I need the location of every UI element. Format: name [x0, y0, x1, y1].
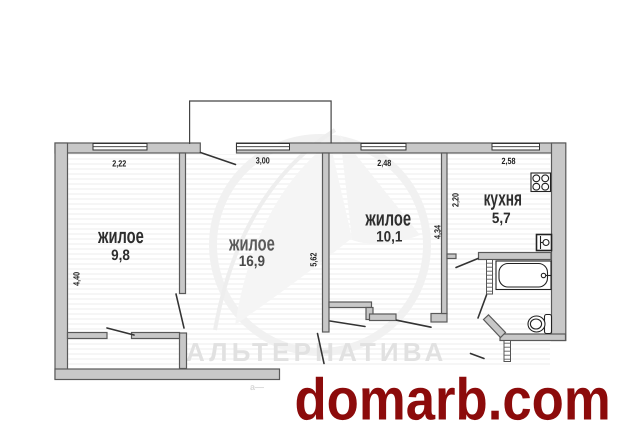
svg-text:domarb.com: domarb.com — [295, 367, 611, 433]
svg-text:4,34: 4,34 — [432, 225, 442, 239]
svg-text:кухня: кухня — [484, 188, 522, 211]
svg-text:2,20: 2,20 — [451, 193, 461, 207]
svg-text:жилое: жилое — [365, 208, 411, 231]
svg-text:а—: а— — [250, 382, 264, 392]
svg-text:5,62: 5,62 — [308, 253, 318, 267]
svg-text:жилое: жилое — [97, 225, 143, 248]
svg-text:5,7: 5,7 — [492, 210, 511, 227]
svg-text:2,22: 2,22 — [112, 159, 126, 169]
svg-text:3,00: 3,00 — [256, 155, 270, 165]
svg-text:2,48: 2,48 — [377, 158, 391, 168]
svg-text:9,8: 9,8 — [111, 247, 130, 264]
svg-text:2,58: 2,58 — [501, 156, 515, 166]
svg-text:10,1: 10,1 — [376, 229, 402, 246]
svg-text:16,9: 16,9 — [239, 253, 265, 270]
svg-text:АЛЬТЕРНАТИВА: АЛЬТЕРНАТИВА — [186, 337, 447, 367]
svg-text:4,40: 4,40 — [72, 272, 82, 286]
